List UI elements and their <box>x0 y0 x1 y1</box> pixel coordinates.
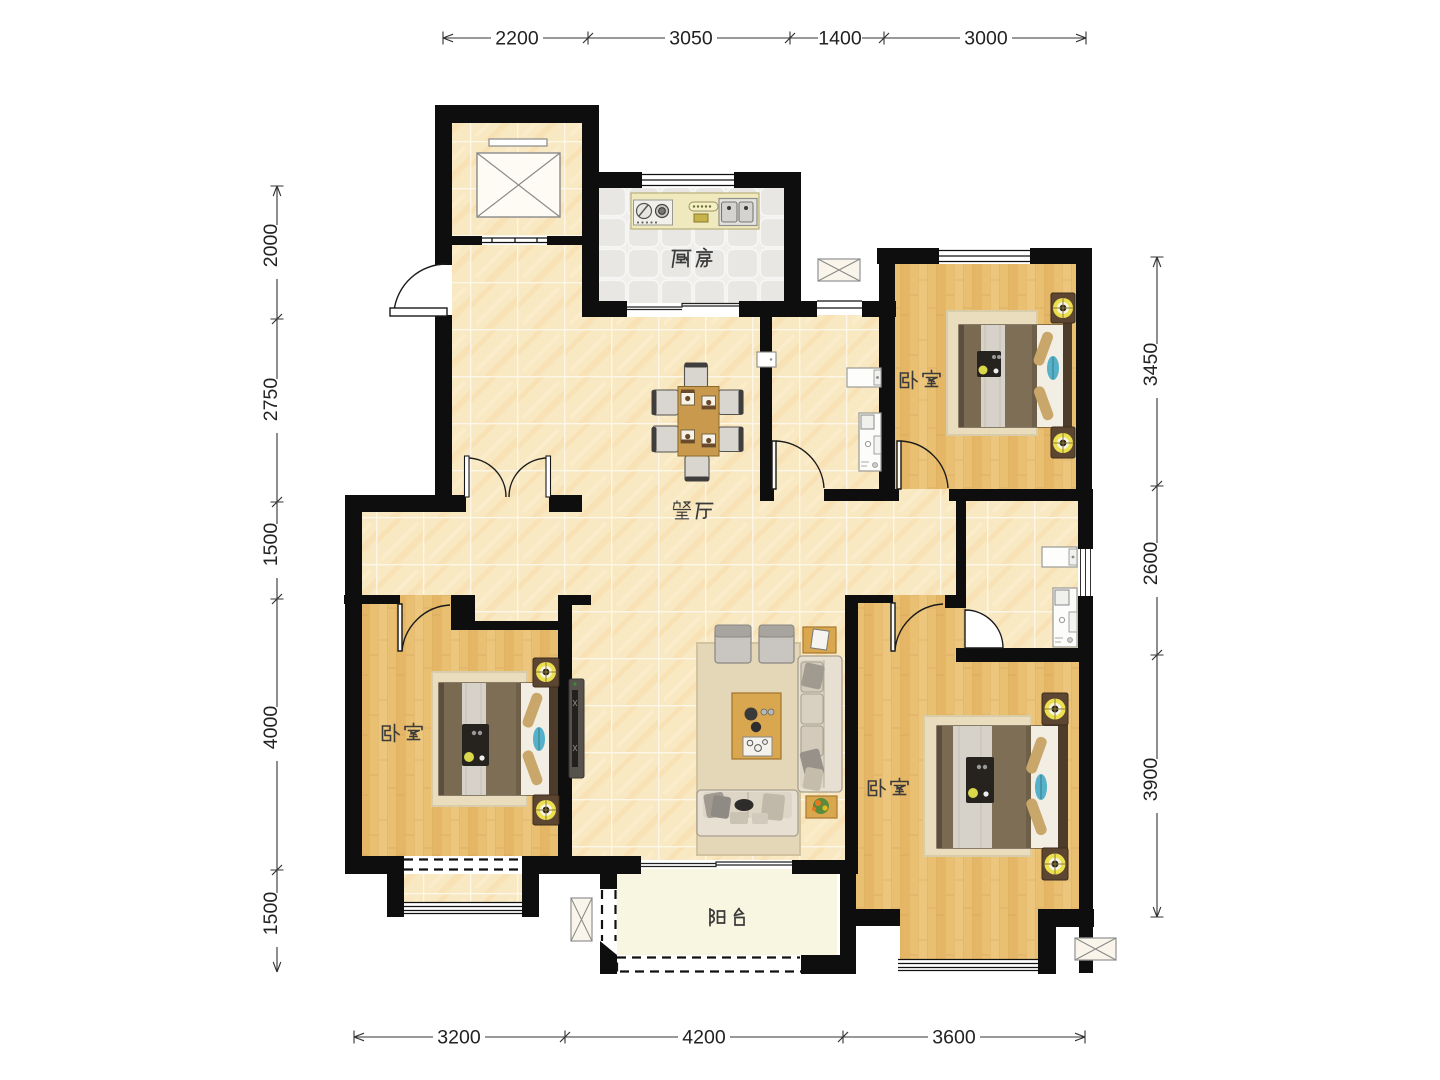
svg-text:3050: 3050 <box>669 28 713 50</box>
svg-text:2000: 2000 <box>260 224 282 268</box>
svg-text:3200: 3200 <box>437 1027 481 1049</box>
svg-text:1400: 1400 <box>818 28 862 50</box>
svg-text:4000: 4000 <box>260 706 282 750</box>
svg-text:2600: 2600 <box>1140 542 1162 586</box>
svg-text:3600: 3600 <box>932 1027 976 1049</box>
svg-text:4200: 4200 <box>682 1027 726 1049</box>
svg-text:3450: 3450 <box>1140 343 1162 387</box>
svg-text:3900: 3900 <box>1140 758 1162 802</box>
svg-text:2200: 2200 <box>495 28 539 50</box>
svg-text:3000: 3000 <box>964 28 1008 50</box>
svg-text:1500: 1500 <box>260 892 282 936</box>
svg-text:2750: 2750 <box>260 378 282 422</box>
svg-text:1500: 1500 <box>260 523 282 567</box>
